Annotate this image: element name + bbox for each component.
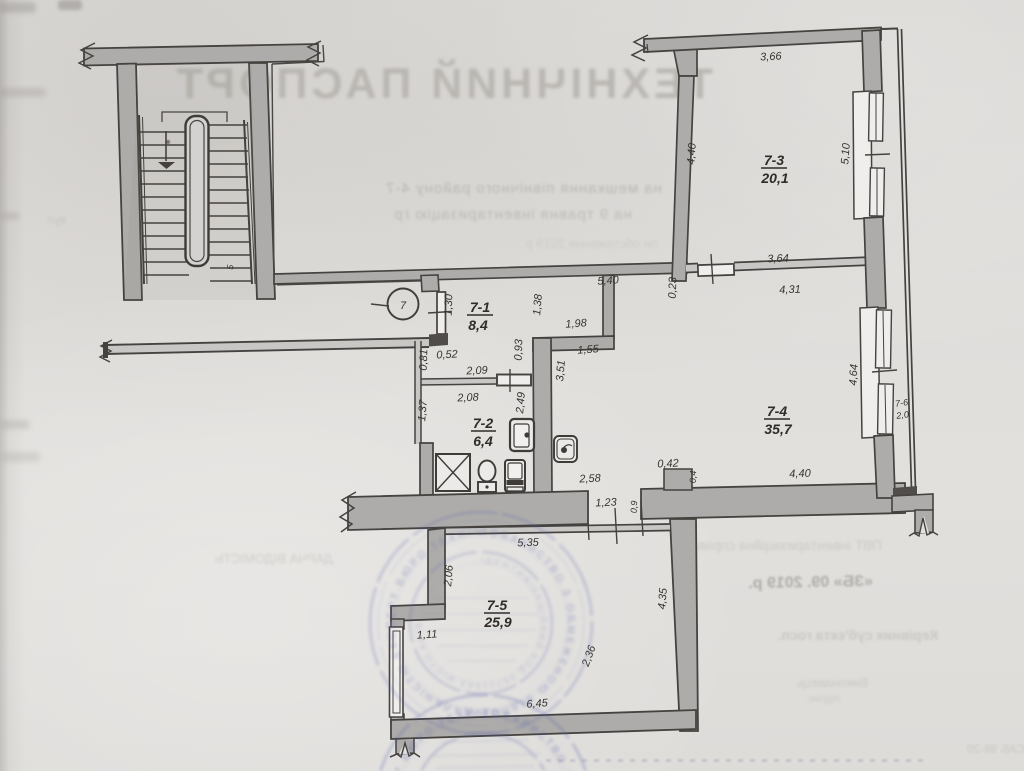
svg-text:ТОВАРИСТВО З ОБМЕЖЕНОЮ ВІДПОВІ: ТОВАРИСТВО З ОБМЕЖЕНОЮ ВІДПОВІДАЛЬНІСТЮ … [0, 0, 578, 771]
